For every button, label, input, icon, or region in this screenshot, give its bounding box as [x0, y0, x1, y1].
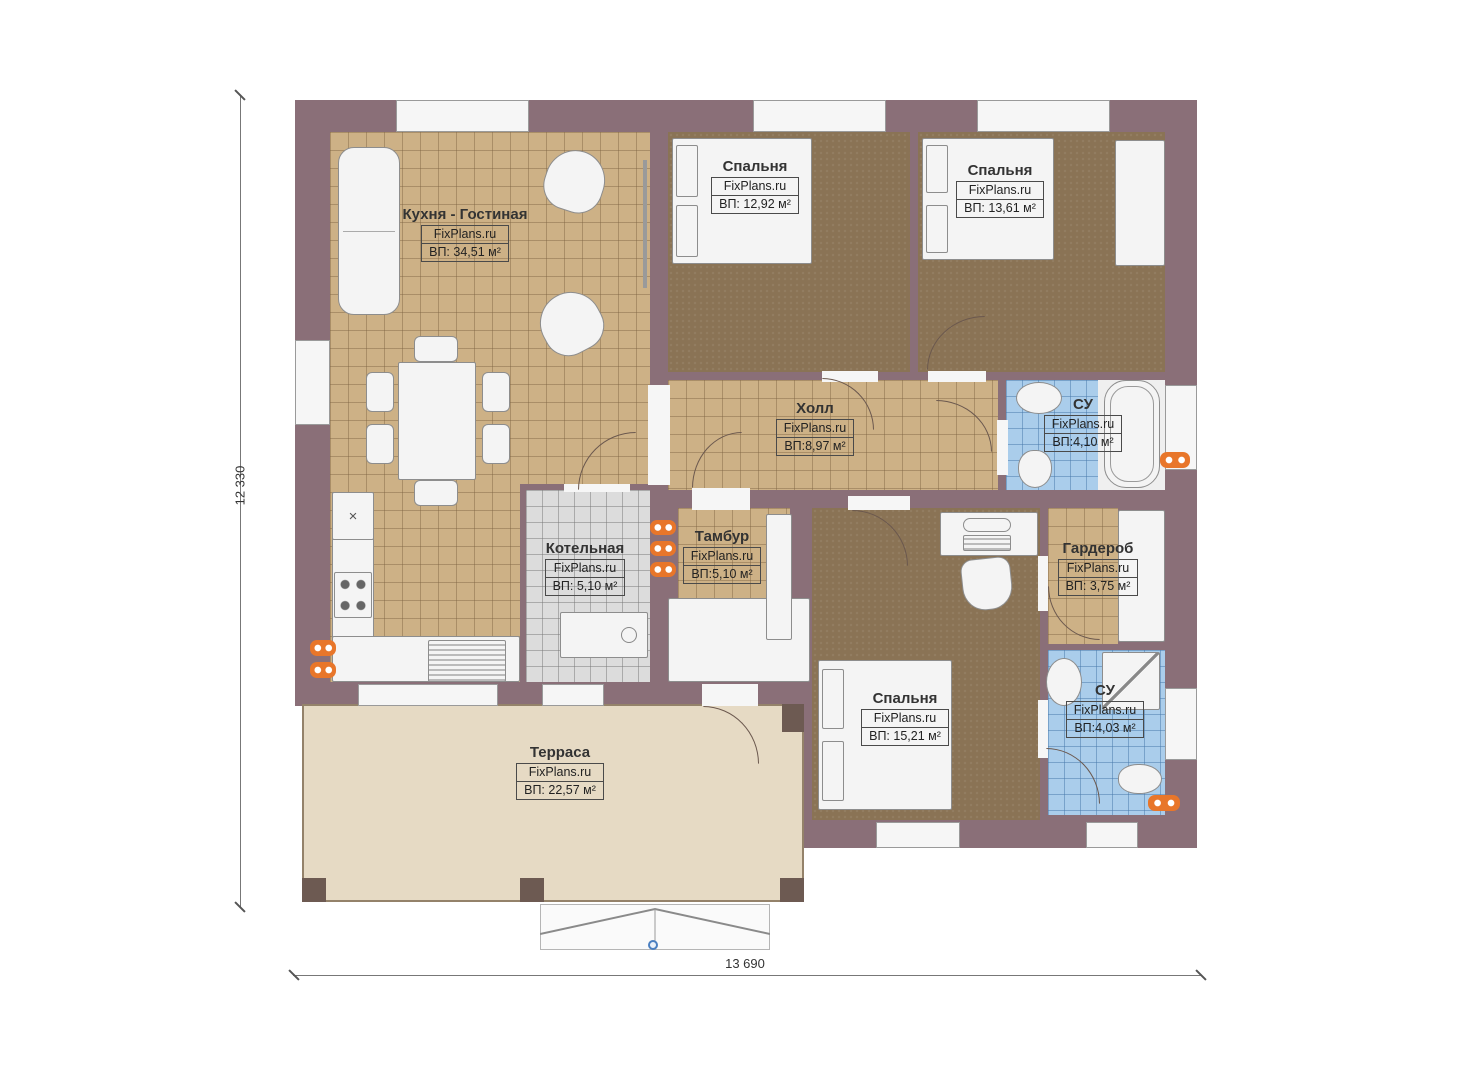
- room-label-bathroom-1: СУ FixPlans.ru ВП:4,10 м²: [1018, 396, 1148, 452]
- room-name: Гардероб: [1028, 540, 1168, 557]
- radiator: [1160, 452, 1190, 468]
- room-info-box: FixPlans.ru ВП: 12,92 м²: [711, 177, 799, 214]
- area-label: ВП: 3,75 м²: [1059, 578, 1138, 595]
- boiler-dial-icon: [621, 627, 637, 643]
- room-info-box: FixPlans.ru ВП: 5,10 м²: [545, 559, 626, 596]
- brand-label: FixPlans.ru: [777, 420, 854, 438]
- dining-chair-right-1: [482, 372, 510, 412]
- terrace-post-3: [780, 878, 804, 902]
- room-info-box: FixPlans.ru ВП: 22,57 м²: [516, 763, 604, 800]
- area-label: ВП: 34,51 м²: [422, 244, 508, 261]
- room-name: СУ: [1040, 682, 1170, 699]
- window-top-2: [753, 100, 886, 132]
- dining-chair-right-2: [482, 424, 510, 464]
- sink-cross-icon: ×: [349, 508, 358, 525]
- stove: [334, 572, 372, 618]
- brand-label: FixPlans.ru: [546, 560, 625, 578]
- toilet-bathroom-1: [1018, 450, 1052, 488]
- room-label-bathroom-2: СУ FixPlans.ru ВП:4,03 м²: [1040, 682, 1170, 738]
- tv: [643, 160, 647, 288]
- dimension-line-horizontal: [293, 975, 1201, 976]
- dining-chair-top: [414, 336, 458, 362]
- terrace-post-1: [302, 878, 326, 902]
- room-label-boiler-room: Котельная FixPlans.ru ВП: 5,10 м²: [515, 540, 655, 596]
- area-label: ВП:5,10 м²: [684, 566, 761, 583]
- room-info-box: FixPlans.ru ВП: 15,21 м²: [861, 709, 949, 746]
- room-label-hall: Холл FixPlans.ru ВП:8,97 м²: [745, 400, 885, 456]
- room-name: Спальня: [930, 162, 1070, 179]
- room-label-kitchen-living: Кухня - Гостиная FixPlans.ru ВП: 34,51 м…: [375, 206, 555, 262]
- area-label: ВП: 5,10 м²: [546, 578, 625, 595]
- room-info-box: FixPlans.ru ВП: 13,61 м²: [956, 181, 1044, 218]
- room-info-box: FixPlans.ru ВП:5,10 м²: [683, 547, 762, 584]
- kitchen-sink: ×: [332, 492, 374, 540]
- room-info-box: FixPlans.ru ВП: 3,75 м²: [1058, 559, 1139, 596]
- room-info-box: FixPlans.ru ВП:4,03 м²: [1066, 701, 1145, 738]
- opening-bathroom-1-door: [997, 420, 1008, 475]
- room-label-bedroom-1: Спальня FixPlans.ru ВП: 12,92 м²: [685, 158, 825, 214]
- window-bottom-right-2: [1086, 822, 1138, 848]
- room-info-box: FixPlans.ru ВП:8,97 м²: [776, 419, 855, 456]
- area-label: ВП:4,03 м²: [1067, 720, 1144, 737]
- brand-label: FixPlans.ru: [422, 226, 508, 244]
- opening-bedroom-3-door: [848, 496, 910, 510]
- room-info-box: FixPlans.ru ВП: 34,51 м²: [421, 225, 509, 262]
- closet-bedroom-2: [1115, 140, 1165, 266]
- room-name: Терраса: [480, 744, 640, 761]
- window-top-3: [977, 100, 1110, 132]
- dining-chair-bottom: [414, 480, 458, 506]
- area-label: ВП: 13,61 м²: [957, 200, 1043, 217]
- dimension-label-horizontal: 13 690: [695, 956, 795, 971]
- brand-label: FixPlans.ru: [957, 182, 1043, 200]
- brand-label: FixPlans.ru: [684, 548, 761, 566]
- window-kitchen-bottom-1: [358, 684, 498, 706]
- window-bottom-right-1: [876, 822, 960, 848]
- floor-plan-canvas: ×: [0, 0, 1474, 1080]
- room-name: СУ: [1018, 396, 1148, 413]
- brand-label: FixPlans.ru: [517, 764, 603, 782]
- desk: [940, 512, 1038, 556]
- area-label: ВП:4,10 м²: [1045, 434, 1122, 451]
- room-name: Кухня - Гостиная: [375, 206, 555, 223]
- room-label-terrace: Терраса FixPlans.ru ВП: 22,57 м²: [480, 744, 640, 800]
- dining-chair-left-2: [366, 424, 394, 464]
- terrace-post-2: [520, 878, 544, 902]
- area-label: ВП: 12,92 м²: [712, 196, 798, 213]
- brand-label: FixPlans.ru: [862, 710, 948, 728]
- pillow: [822, 741, 844, 801]
- area-label: ВП: 15,21 м²: [862, 728, 948, 745]
- radiator: [1148, 795, 1180, 811]
- boiler-unit: [560, 612, 648, 658]
- dining-chair-left-1: [366, 372, 394, 412]
- room-name: Спальня: [685, 158, 825, 175]
- room-name: Спальня: [835, 690, 975, 707]
- brand-label: FixPlans.ru: [1067, 702, 1144, 720]
- terrace-post-4: [782, 704, 804, 732]
- stairs-marker-icon: [648, 940, 658, 950]
- room-label-bedroom-2: Спальня FixPlans.ru ВП: 13,61 м²: [930, 162, 1070, 218]
- window-kitchen-bottom-2: [542, 684, 604, 706]
- room-info-box: FixPlans.ru ВП:4,10 м²: [1044, 415, 1123, 452]
- room-name: Холл: [745, 400, 885, 417]
- window-left: [295, 340, 330, 425]
- toilet-bathroom-2: [1118, 764, 1162, 794]
- room-label-vestibule: Тамбур FixPlans.ru ВП:5,10 м²: [652, 528, 792, 584]
- entrance-door-leaf: [702, 684, 758, 706]
- desk-item: [963, 518, 1011, 532]
- brand-label: FixPlans.ru: [1059, 560, 1138, 578]
- radiator: [310, 662, 336, 678]
- dimension-label-vertical: 12 330: [233, 446, 248, 526]
- area-label: ВП: 22,57 м²: [517, 782, 603, 799]
- desk-keyboard: [963, 535, 1011, 551]
- dining-table: [398, 362, 476, 480]
- opening-bedroom-2-door: [928, 371, 986, 382]
- dishwasher: [428, 640, 506, 682]
- window-top-1: [396, 100, 529, 132]
- radiator: [310, 640, 336, 656]
- brand-label: FixPlans.ru: [1045, 416, 1122, 434]
- area-label: ВП:8,97 м²: [777, 438, 854, 455]
- brand-label: FixPlans.ru: [712, 178, 798, 196]
- room-name: Котельная: [515, 540, 655, 557]
- opening-kitchen-hall: [648, 385, 670, 485]
- opening-hall-vestibule: [692, 488, 750, 510]
- room-label-bedroom-3: Спальня FixPlans.ru ВП: 15,21 м²: [835, 690, 975, 746]
- room-name: Тамбур: [652, 528, 792, 545]
- room-label-wardrobe: Гардероб FixPlans.ru ВП: 3,75 м²: [1028, 540, 1168, 596]
